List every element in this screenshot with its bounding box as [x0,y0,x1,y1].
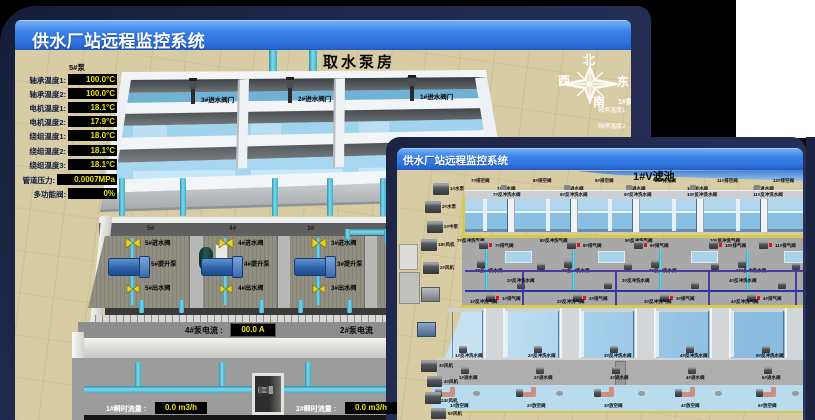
svg-text:1#进水阀门: 1#进水阀门 [420,92,454,101]
svg-text:3#进水阀门: 3#进水阀门 [201,95,235,104]
svg-text:2#进水阀门: 2#进水阀门 [298,94,332,103]
